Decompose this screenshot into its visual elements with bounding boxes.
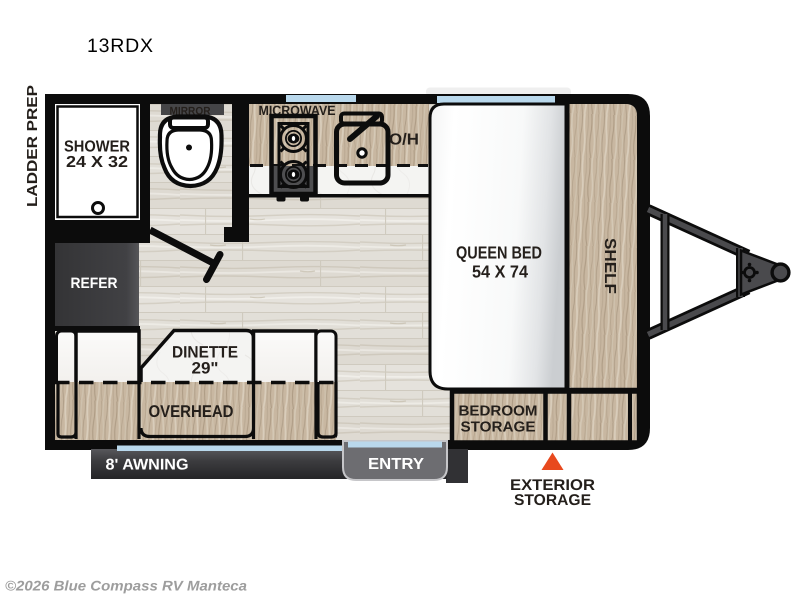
svg-text:SHELF: SHELF [601,238,618,294]
svg-text:SHOWER: SHOWER [64,139,130,156]
svg-text:54 X 74: 54 X 74 [472,262,528,282]
svg-text:8' AWNING: 8' AWNING [106,457,189,474]
svg-text:24 X 32: 24 X 32 [66,154,128,171]
svg-text:QUEEN BED: QUEEN BED [456,243,542,263]
svg-text:REFER: REFER [71,275,118,292]
svg-text:STORAGE: STORAGE [461,420,536,436]
svg-text:ENTRY: ENTRY [368,456,424,473]
svg-text:LADDER PREP: LADDER PREP [25,85,41,207]
svg-text:13RDX: 13RDX [87,35,153,57]
svg-text:29": 29" [192,360,219,378]
svg-text:BEDROOM: BEDROOM [459,404,538,420]
svg-text:OVERHEAD: OVERHEAD [149,402,234,421]
svg-text:O/H: O/H [389,132,419,149]
svg-text:©2026 Blue Compass RV Manteca: ©2026 Blue Compass RV Manteca [5,578,247,594]
svg-text:STORAGE: STORAGE [514,492,591,509]
